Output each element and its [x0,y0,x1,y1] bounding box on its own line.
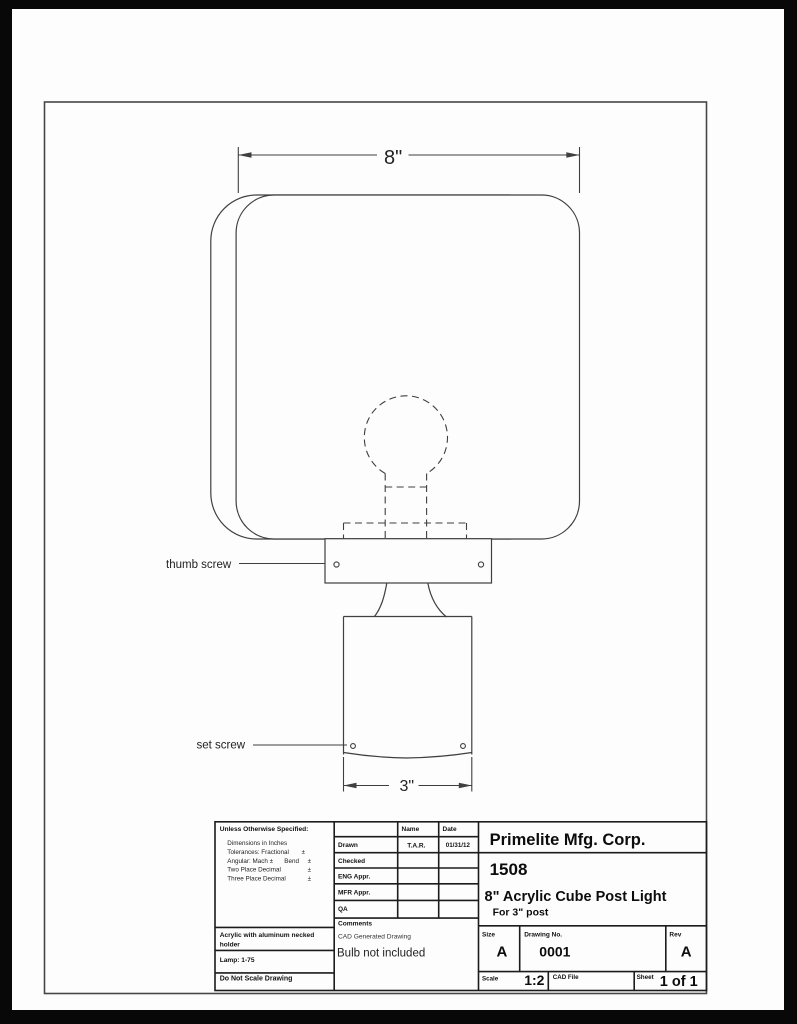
svg-text:Bulb not included: Bulb not included [337,948,425,960]
svg-text:A: A [497,944,508,961]
svg-text:1 of 1: 1 of 1 [660,974,698,990]
svg-text:Do Not Scale Drawing: Do Not Scale Drawing [220,975,293,982]
svg-text:Drawn: Drawn [338,842,358,849]
svg-text:01/31/12: 01/31/12 [446,842,471,849]
svg-text:8": 8" [384,147,402,169]
svg-text:set screw: set screw [197,740,246,752]
svg-text:1:2: 1:2 [524,972,544,988]
svg-text:8" Acrylic Cube Post Light: 8" Acrylic Cube Post Light [485,889,667,905]
svg-text:3": 3" [400,778,415,795]
svg-text:Scale: Scale [482,976,499,983]
svg-text:Date: Date [443,826,457,833]
svg-text:Rev: Rev [669,932,681,939]
svg-text:thumb screw: thumb screw [166,559,232,571]
svg-text:Sheet: Sheet [637,974,655,981]
svg-text:Size: Size [482,932,495,939]
svg-text:Angular: Mach ±: Angular: Mach ± [227,858,273,865]
svg-text:Primelite Mfg. Corp.: Primelite Mfg. Corp. [490,831,646,849]
svg-text:0001: 0001 [539,944,570,960]
svg-text:Tolerances: Fractional: Tolerances: Fractional [227,849,289,856]
svg-text:CAD File: CAD File [553,974,579,981]
svg-text:Dimensions in Inches: Dimensions in Inches [227,840,287,847]
svg-text:±: ± [302,849,306,856]
svg-text:±: ± [308,858,312,865]
svg-text:ENG Appr.: ENG Appr. [338,874,370,881]
svg-text:Comments: Comments [338,921,372,928]
svg-text:holder: holder [220,942,241,949]
svg-text:Name: Name [402,826,420,833]
svg-text:Three Place Decimal: Three Place Decimal [227,875,285,882]
svg-text:Checked: Checked [338,858,365,865]
svg-text:1508: 1508 [490,860,528,879]
svg-text:A: A [681,944,692,961]
svg-text:Unless Otherwise Specified:: Unless Otherwise Specified: [220,826,309,833]
svg-text:±: ± [308,875,312,882]
svg-text:Two Place Decimal: Two Place Decimal [227,867,281,874]
svg-text:Lamp: 1-75: Lamp: 1-75 [220,957,255,964]
svg-text:Drawing No.: Drawing No. [524,932,562,939]
svg-text:T.A.R.: T.A.R. [407,843,425,850]
svg-text:For 3" post: For 3" post [493,906,549,918]
svg-text:Acrylic with aluminum necked: Acrylic with aluminum necked [220,932,315,939]
svg-text:CAD Generated Drawing: CAD Generated Drawing [338,934,411,941]
svg-text:QA: QA [338,906,348,913]
svg-text:MFR Appr.: MFR Appr. [338,890,370,897]
svg-text:Bend: Bend [284,858,299,865]
svg-text:±: ± [308,867,312,874]
